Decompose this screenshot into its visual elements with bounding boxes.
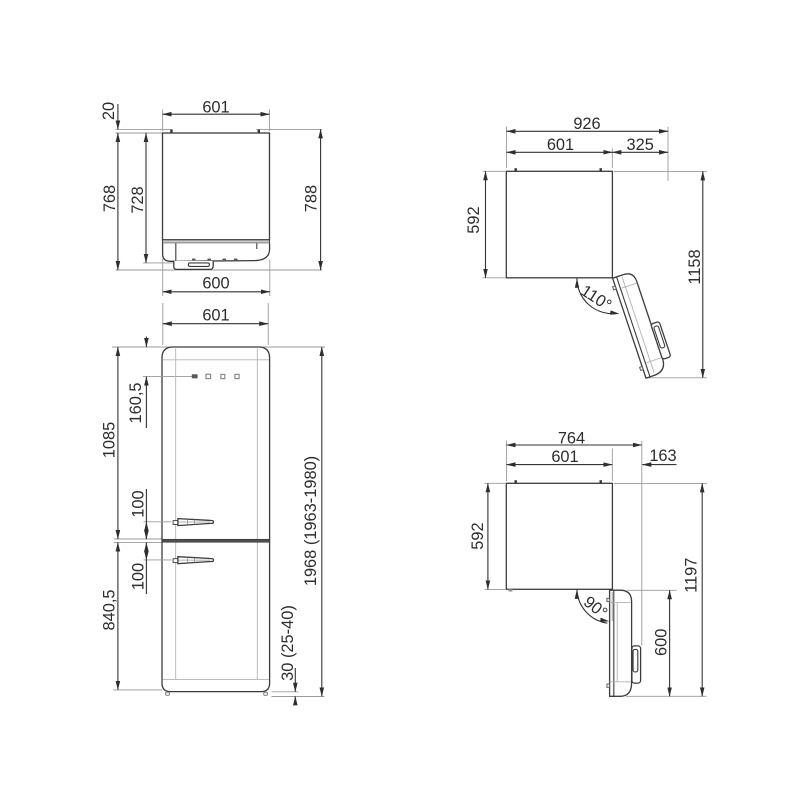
- svg-text:20: 20: [100, 102, 118, 120]
- svg-text:728: 728: [129, 186, 147, 213]
- svg-text:100: 100: [129, 563, 147, 590]
- svg-text:30 (25-40): 30 (25-40): [279, 605, 297, 681]
- svg-text:601: 601: [547, 136, 574, 154]
- svg-text:1968 (1963-1980): 1968 (1963-1980): [302, 456, 320, 586]
- svg-text:600: 600: [202, 274, 229, 292]
- svg-text:160,5: 160,5: [127, 382, 145, 423]
- svg-text:1158: 1158: [686, 249, 704, 284]
- svg-text:601: 601: [202, 98, 229, 116]
- svg-text:90°: 90°: [580, 593, 611, 622]
- svg-text:163: 163: [649, 447, 676, 465]
- svg-text:600: 600: [653, 629, 671, 656]
- svg-text:1085: 1085: [100, 422, 118, 458]
- svg-text:100: 100: [129, 490, 147, 517]
- svg-text:325: 325: [627, 136, 654, 154]
- svg-text:840,5: 840,5: [100, 589, 118, 630]
- svg-text:592: 592: [465, 206, 483, 233]
- svg-text:601: 601: [202, 307, 229, 325]
- svg-text:926: 926: [573, 115, 600, 133]
- svg-text:788: 788: [303, 185, 321, 212]
- svg-text:1197: 1197: [682, 558, 700, 593]
- svg-text:601: 601: [551, 448, 578, 466]
- svg-text:768: 768: [101, 185, 119, 212]
- svg-text:764: 764: [558, 429, 585, 447]
- svg-text:592: 592: [469, 522, 487, 549]
